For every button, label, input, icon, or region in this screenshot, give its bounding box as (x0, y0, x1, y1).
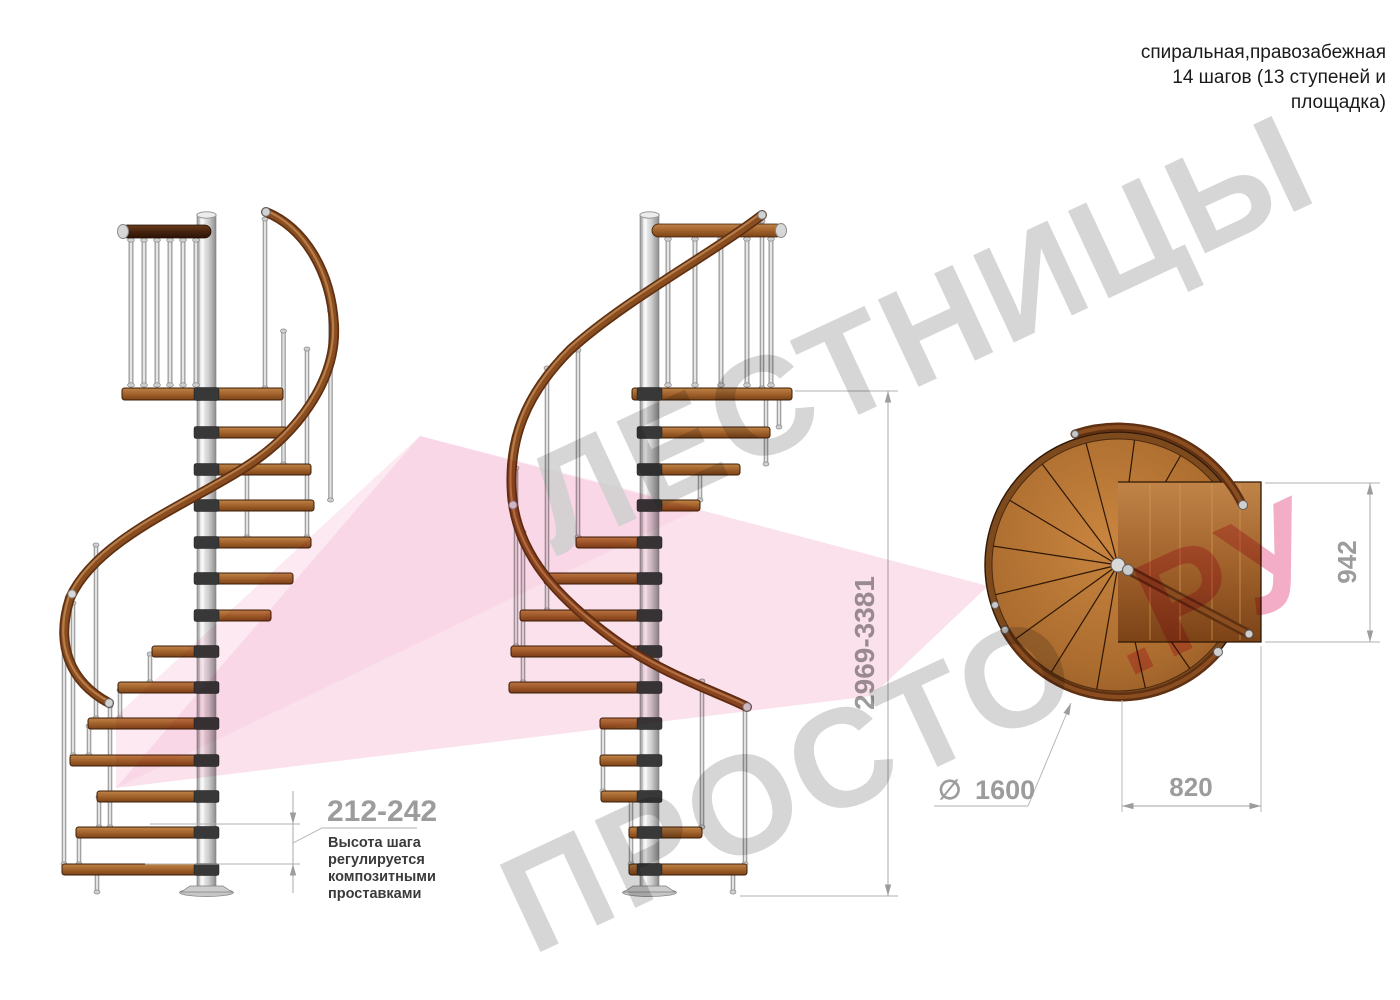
baluster-cap (167, 238, 174, 242)
rod-cap (730, 890, 736, 894)
diameter-value: ∅ 1600 (938, 775, 1035, 805)
side-view-staircase (509, 211, 792, 897)
baluster-cap (180, 383, 187, 387)
rail-cap (1239, 501, 1248, 510)
rod-cap (763, 462, 769, 466)
baluster-cap (167, 383, 174, 387)
pole-clamp (194, 791, 219, 803)
pole-clamp (637, 755, 662, 767)
landing-depth-dim-lines (1265, 483, 1380, 642)
pole-clamp (194, 537, 219, 549)
rod-cap (93, 543, 99, 547)
baluster-cap (193, 383, 200, 387)
arrow-leader (1064, 703, 1072, 715)
pole-clamp (637, 718, 662, 730)
pole-clamp (637, 464, 662, 476)
pole-clamp (194, 864, 219, 876)
note-line: регулируется (328, 852, 425, 868)
baluster-cap (692, 237, 699, 241)
diameter-number: 1600 (975, 775, 1035, 805)
tread-bar (118, 682, 207, 693)
pole-clamp (194, 610, 219, 622)
pole-clamp (194, 427, 219, 439)
rail-cap (1245, 630, 1253, 638)
platform-handrail-wood (652, 224, 783, 237)
rail-cap (1214, 648, 1223, 657)
pole-clamp (637, 500, 662, 512)
baluster-cap (692, 383, 699, 387)
pole-clamp (194, 755, 219, 767)
rod-cap (94, 890, 100, 894)
center-pole (640, 214, 659, 888)
step-height-note: Высота шага регулируется композитными пр… (328, 835, 436, 902)
step-height-value: 212-242 (327, 795, 437, 828)
top-view (985, 427, 1261, 698)
pole-clamp (637, 573, 662, 585)
title-line-1: спиральная,правозабежная (1141, 42, 1386, 63)
pole-clamp (194, 682, 219, 694)
pole-clamp (194, 573, 219, 585)
pole-clamp (637, 388, 662, 401)
platform-balusters (665, 237, 775, 387)
pole-clamp (194, 646, 219, 658)
arrow-up (885, 391, 891, 403)
handrail-end-cap (776, 224, 787, 238)
total-height-value: 2969-3381 (849, 576, 880, 710)
pole-clamp (637, 791, 662, 803)
arrow-down (1367, 631, 1373, 643)
drawing-page: 212-242 Высота шага регулируется компози… (0, 0, 1400, 1000)
title-line-2: 14 шагов (13 ступеней и (1172, 67, 1386, 88)
handrail-end-cap (118, 225, 129, 239)
staircase-drawing: 212-242 Высота шага регулируется компози… (0, 0, 1400, 1000)
arrow-left (1122, 803, 1134, 809)
baluster-dot (1002, 627, 1009, 634)
baluster-cap (128, 238, 135, 242)
tread-bar (206, 464, 311, 475)
title-line-3: площадка) (1291, 92, 1386, 113)
tread-bar (206, 500, 314, 511)
baluster-cap (154, 238, 161, 242)
arrow-down (885, 885, 891, 897)
tread-bar (88, 718, 207, 729)
arrow-down (290, 813, 296, 825)
pole-clamp (637, 610, 662, 622)
tread-bar (651, 464, 740, 475)
tread-bar (509, 682, 657, 693)
baluster-cap (744, 383, 751, 387)
note-line: проставками (328, 886, 421, 902)
arrow-right (1250, 803, 1262, 809)
platform-handrail-dark (121, 225, 211, 238)
rod-cap (281, 329, 287, 333)
note-line: композитными (328, 869, 436, 885)
title-block: спиральная,правозабежная 14 шагов (13 ст… (1141, 42, 1386, 113)
baluster-cap (180, 238, 187, 242)
handrail-sleeve (509, 501, 517, 509)
center-pole (197, 214, 216, 888)
treads (62, 388, 314, 876)
handrail-start-cap (262, 208, 270, 216)
baluster-cap (768, 237, 775, 241)
tread-bar (651, 427, 770, 438)
baluster-cap (718, 383, 725, 387)
pole-clamp (637, 537, 662, 549)
rod-cap (776, 425, 782, 429)
pole-clamp (194, 388, 219, 401)
pole-highlight (643, 216, 647, 886)
pole-highlight (200, 216, 204, 886)
baluster-dot (992, 602, 999, 609)
pole-clamp (637, 682, 662, 694)
pole-top-cap (640, 212, 659, 218)
tread-bar (70, 755, 207, 766)
rod-cap (328, 498, 334, 502)
platform-balusters (128, 238, 200, 387)
tread-bar (206, 537, 311, 548)
baluster-cap (768, 383, 775, 387)
pole-clamp (194, 464, 219, 476)
pole-clamp (194, 827, 219, 839)
landing-depth-value: 942 (1332, 540, 1362, 583)
diameter-symbol: ∅ (938, 775, 962, 805)
baluster-cap (154, 383, 161, 387)
pole-clamp (637, 827, 662, 839)
pole-top-cap (197, 212, 216, 218)
baluster-cap (665, 237, 672, 241)
baluster-cap (141, 238, 148, 242)
handrail-start-cap (758, 211, 766, 219)
handrail-sleeve (68, 590, 76, 598)
pole-clamp (194, 500, 219, 512)
landing-width-value: 820 (1169, 772, 1212, 802)
pole-clamp (637, 864, 662, 876)
arrow-up (290, 864, 296, 876)
note-line: Высота шага (328, 835, 422, 851)
pole-clamp (194, 718, 219, 730)
baluster-dot (1072, 431, 1079, 438)
handrail-bottom-cap (105, 699, 113, 707)
arrow-up (1367, 483, 1373, 495)
baluster-cap (141, 383, 148, 387)
baluster-cap (128, 383, 135, 387)
handrail-bottom-cap (743, 703, 751, 711)
base-cone (624, 886, 675, 892)
baluster-cap (665, 383, 672, 387)
baluster-cap (193, 238, 200, 242)
pole-clamp (637, 427, 662, 439)
rail-ball-joint (1123, 565, 1134, 576)
rod-cap (304, 347, 310, 351)
base-cone (181, 886, 232, 892)
baluster-cap (744, 237, 751, 241)
